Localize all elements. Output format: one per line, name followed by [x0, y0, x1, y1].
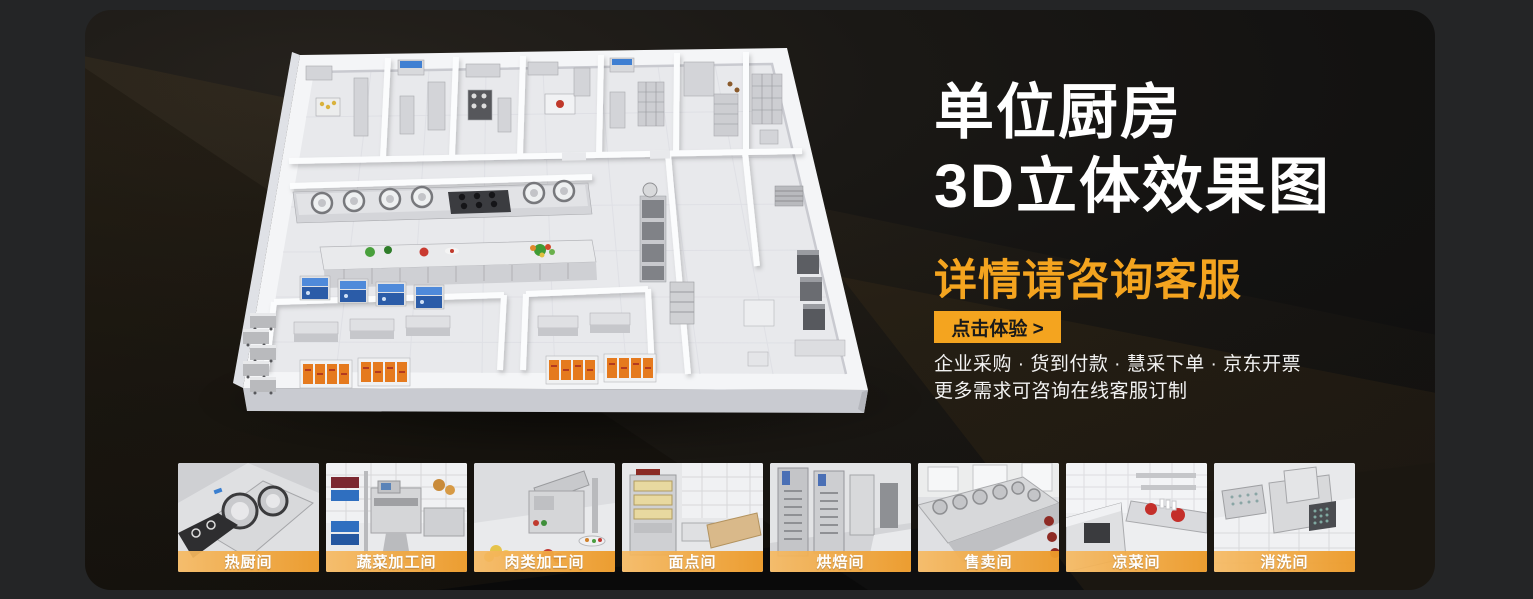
thumbnail-label: 肉类加工间	[474, 551, 615, 572]
thumbnail-label: 售卖间	[918, 551, 1059, 572]
info-line-2: 更多需求可咨询在线客服订制	[934, 379, 1301, 406]
thumbnail-label: 消洗间	[1214, 551, 1355, 572]
title-line-2: 3D立体效果图	[934, 136, 1331, 225]
gallery-item-cold-dish-room[interactable]: 凉菜间	[1066, 463, 1207, 572]
gallery-item-sales-room[interactable]: 售卖间	[918, 463, 1059, 572]
thumbnail-label: 烘焙间	[770, 551, 911, 572]
banner: 单位厨房 3D立体效果图 详情请咨询客服 点击体验 > 企业采购 · 货到付款 …	[0, 0, 1533, 599]
thumbnail-label: 热厨间	[178, 551, 319, 572]
gallery: 热厨间 蔬菜加工间	[178, 463, 1355, 572]
thumbnail-label: 面点间	[622, 551, 763, 572]
info-lines: 企业采购 · 货到付款 · 慧采下单 · 京东开票 更多需求可咨询在线客服订制	[934, 352, 1301, 405]
gallery-item-pastry-room[interactable]: 面点间	[622, 463, 763, 572]
gallery-item-meat-processing-room[interactable]: 肉类加工间	[474, 463, 615, 572]
thumbnail-label: 蔬菜加工间	[326, 551, 467, 572]
info-line-1: 企业采购 · 货到付款 · 慧采下单 · 京东开票	[934, 352, 1301, 379]
cta-button[interactable]: 点击体验 >	[934, 311, 1061, 343]
gallery-item-washing-room[interactable]: 消洗间	[1214, 463, 1355, 572]
floorplan-shadow	[200, 345, 920, 455]
gallery-item-baking-room[interactable]: 烘焙间	[770, 463, 911, 572]
subtitle: 详情请咨询客服	[934, 246, 1242, 308]
gallery-item-vegetable-processing-room[interactable]: 蔬菜加工间	[326, 463, 467, 572]
thumbnail-label: 凉菜间	[1066, 551, 1207, 572]
gallery-item-hot-kitchen-room[interactable]: 热厨间	[178, 463, 319, 572]
